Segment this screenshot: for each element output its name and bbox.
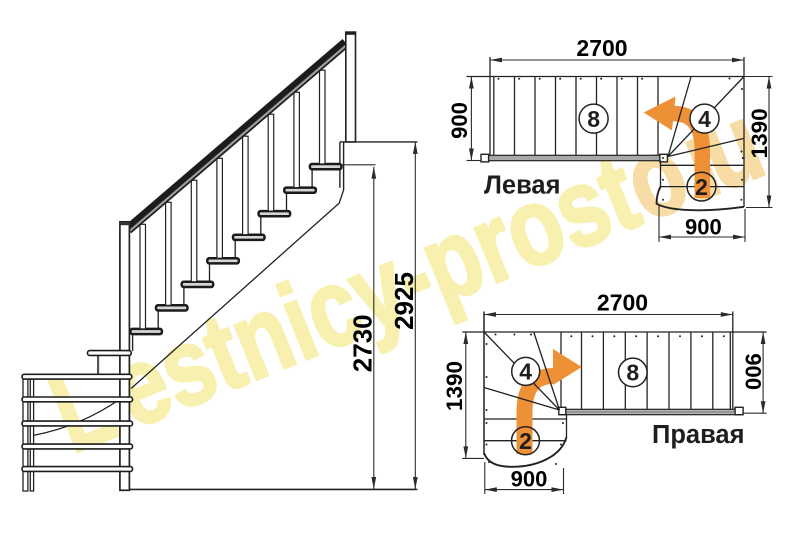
svg-text:8: 8 [587, 106, 600, 132]
svg-text:900: 900 [685, 215, 722, 240]
svg-text:4: 4 [519, 359, 532, 385]
svg-text:900: 900 [741, 353, 766, 390]
svg-text:2700: 2700 [597, 290, 648, 316]
svg-text:2925: 2925 [389, 272, 419, 330]
svg-text:2730: 2730 [348, 314, 378, 372]
svg-text:2700: 2700 [576, 35, 627, 61]
svg-text:4: 4 [698, 106, 711, 132]
svg-text:Правая: Правая [652, 421, 745, 449]
svg-text:1390: 1390 [442, 361, 467, 411]
svg-text:2: 2 [695, 174, 708, 200]
svg-text:1390: 1390 [747, 108, 772, 158]
svg-text:900: 900 [511, 467, 548, 492]
svg-text:8: 8 [626, 360, 639, 386]
svg-text:Левая: Левая [484, 172, 560, 200]
svg-text:2: 2 [519, 428, 532, 454]
svg-text:900: 900 [447, 102, 472, 139]
